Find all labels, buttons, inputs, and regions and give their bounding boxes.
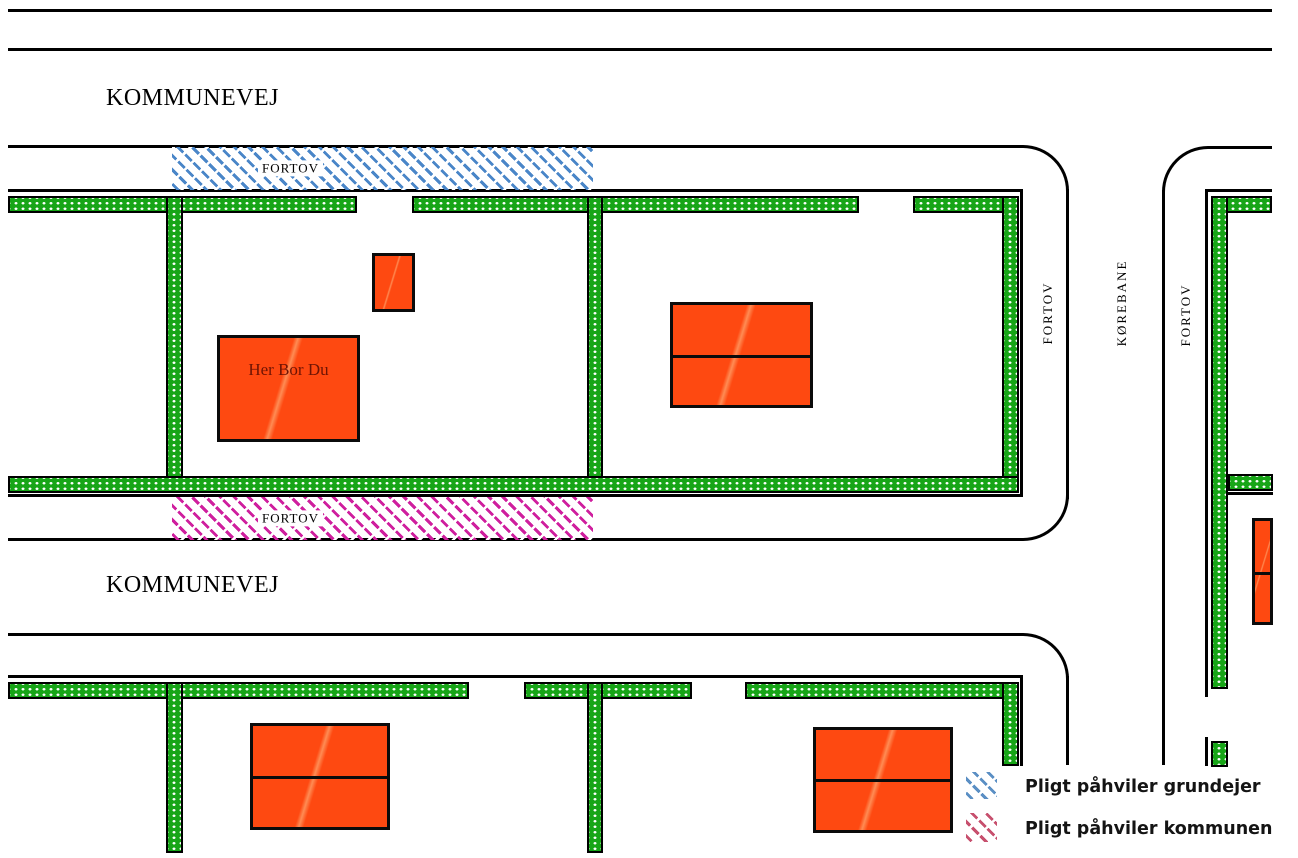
building-outbuilding [372, 253, 415, 312]
building-double-house [1252, 518, 1273, 625]
duty-plan-diagram: KOMMUNEVEJ KOMMUNEVEJ FORTOV FORTOV [0, 0, 1298, 858]
kerb-corner [990, 633, 1069, 679]
her-bor-du-label: Her Bor Du [220, 360, 357, 380]
street-name-bottom: KOMMUNEVEJ [106, 572, 279, 599]
building-double-house [813, 727, 953, 833]
building-divider [670, 355, 813, 358]
building-divider [1252, 572, 1273, 575]
building-double-house [250, 723, 390, 830]
hedge-strip [8, 682, 469, 699]
road-edge-line [8, 9, 1272, 12]
hedge-strip [166, 196, 183, 492]
legend-grundejer-label: Pligt påhviler grundejer [1025, 777, 1261, 797]
kerb-corner [990, 145, 1069, 192]
fortov-vertical-label-left: FORTOV [1040, 258, 1056, 368]
kerb-corner [990, 495, 1069, 541]
building-divider [813, 779, 953, 782]
sidewalk-zone-grundejer-hatch: FORTOV [172, 147, 593, 190]
hedge-strip [1002, 682, 1019, 766]
kerb-line-far-right [1162, 190, 1165, 765]
hedge-strip [1228, 474, 1273, 491]
hedge-strip [166, 682, 183, 853]
legend-kommunen-hatch-swatch [966, 813, 997, 842]
property-line [1205, 189, 1272, 192]
kerb-line-second-road [8, 633, 995, 636]
building-double-house [670, 302, 813, 408]
hedge-strip [587, 682, 603, 853]
hedge-strip [587, 196, 603, 492]
property-line [1228, 492, 1273, 495]
hedge-strip [1211, 196, 1228, 689]
fortov-label-bottom: FORTOV [258, 510, 323, 526]
road-edge-line [8, 48, 1272, 51]
property-line [8, 675, 1023, 678]
building-her-bor-du: Her Bor Du [217, 335, 360, 442]
property-line [1205, 737, 1208, 766]
hedge-strip [524, 682, 692, 699]
kerb-corner [1162, 146, 1272, 193]
hedge-strip [1211, 741, 1228, 767]
legend-kommunen-label: Pligt påhviler kommunen [1025, 819, 1273, 839]
sidewalk-zone-kommunen-hatch: FORTOV [172, 497, 593, 540]
hedge-strip [745, 682, 1019, 699]
property-line [1205, 189, 1208, 697]
hedge-strip [8, 476, 1019, 493]
hedge-strip [1002, 196, 1019, 493]
korebane-vertical-label: KØREBANE [1114, 248, 1130, 358]
kerb-line-right [1066, 189, 1069, 499]
property-line [1020, 675, 1023, 766]
hedge-strip [412, 196, 859, 213]
fortov-vertical-label-right: FORTOV [1178, 260, 1194, 370]
legend-grundejer-hatch-swatch [966, 772, 997, 799]
property-line [1020, 189, 1023, 497]
fortov-label-top: FORTOV [258, 160, 323, 176]
building-divider [250, 776, 390, 779]
street-name-top: KOMMUNEVEJ [106, 85, 279, 112]
kerb-line-right [1066, 676, 1069, 765]
